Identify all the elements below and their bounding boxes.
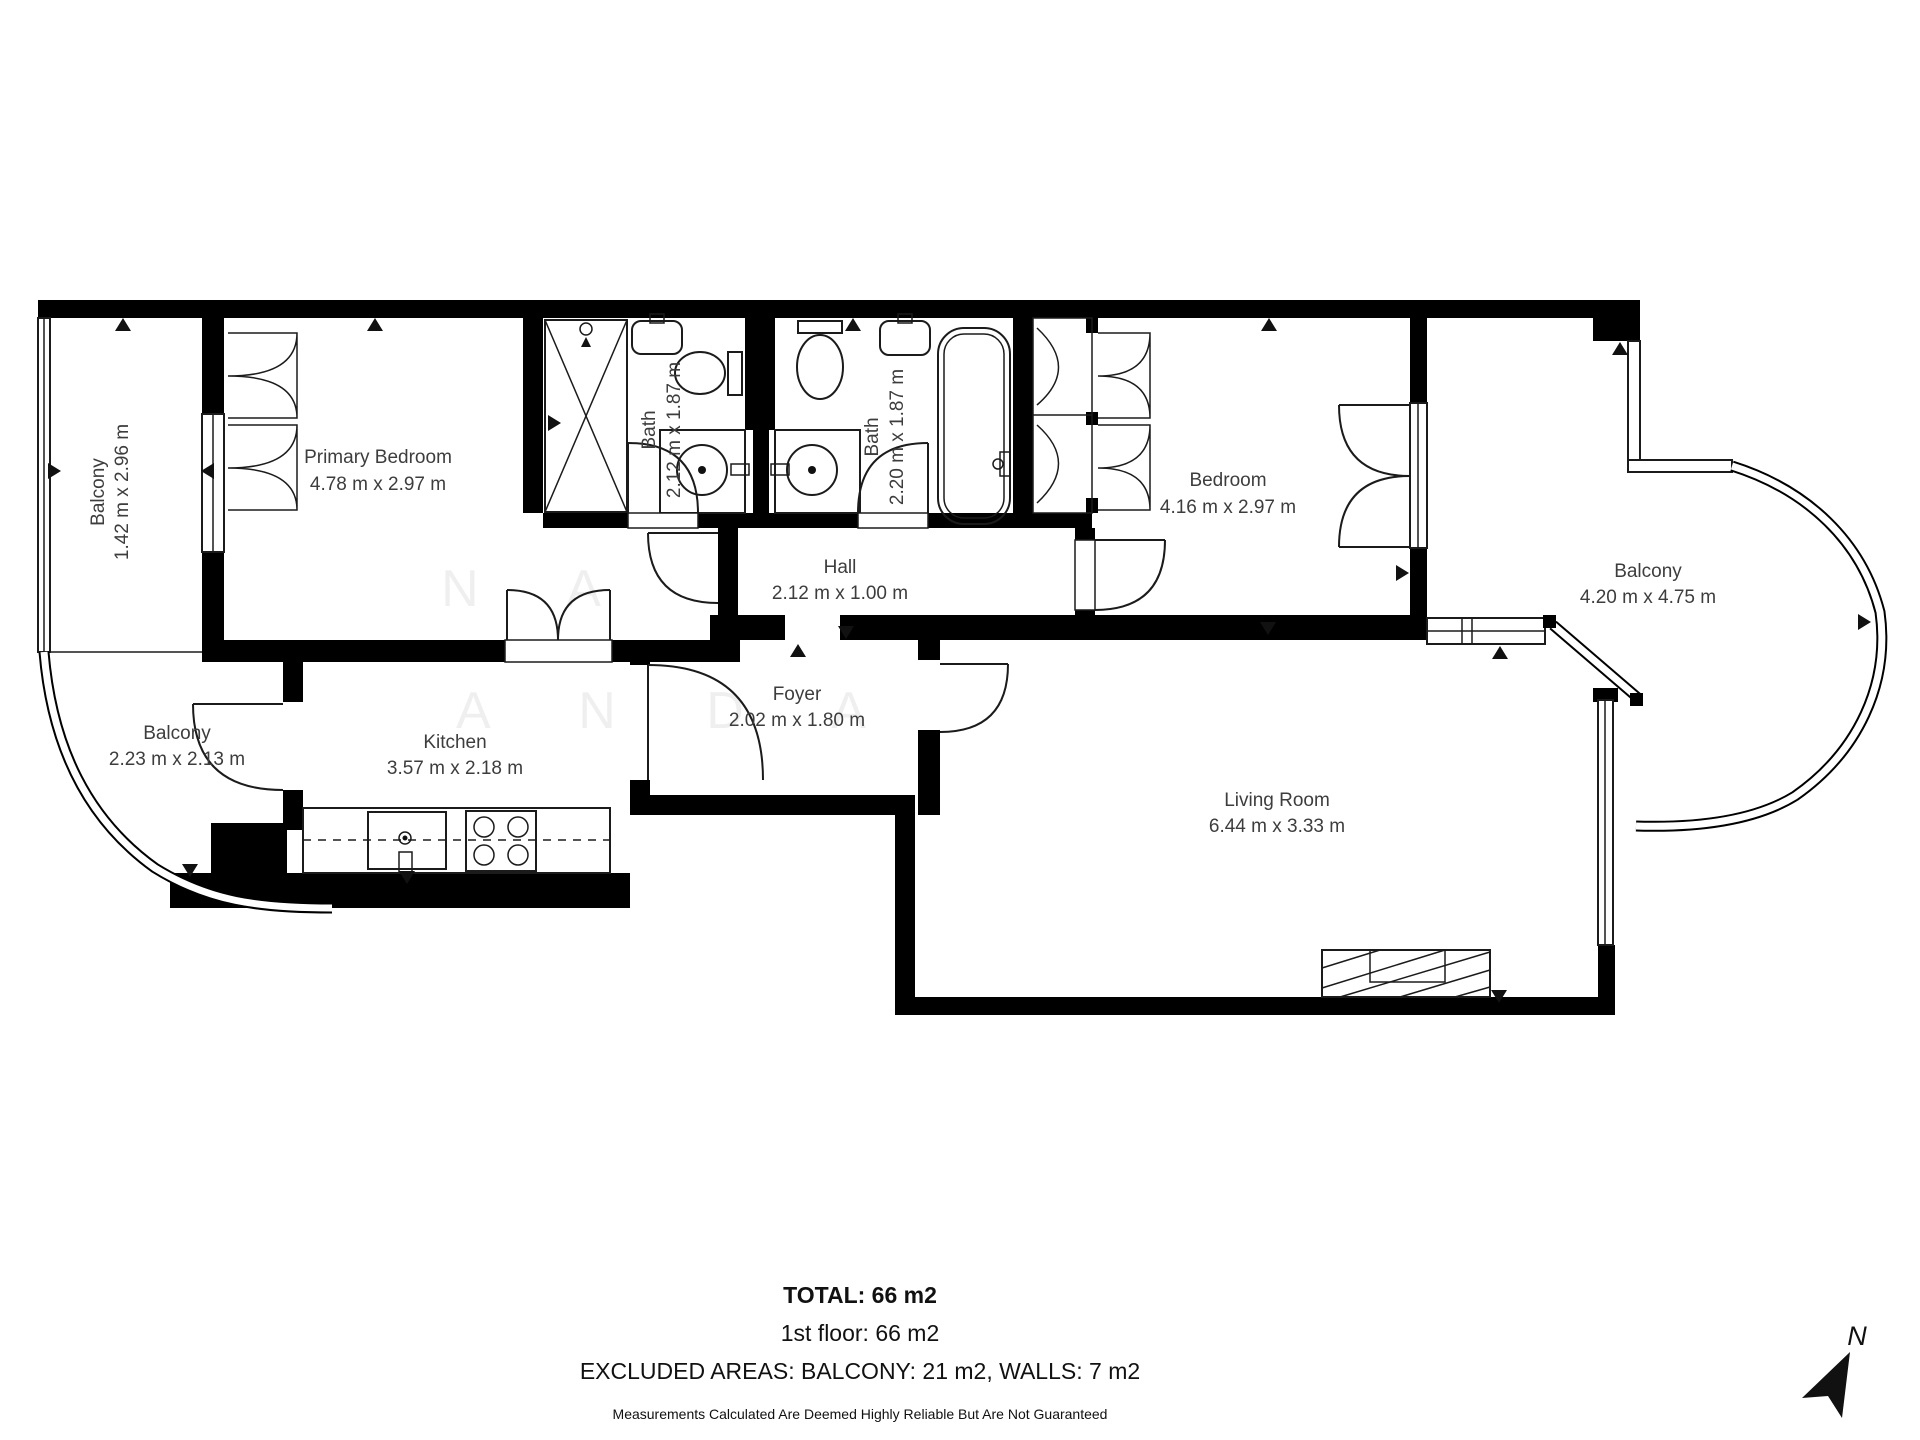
room-dims-balcony-lower: 2.23 m x 2.13 m (109, 749, 245, 770)
wardrobe-doors (228, 333, 297, 418)
toilet-tank (798, 321, 842, 333)
room-label-bath-2: Bath (862, 417, 883, 456)
north-arrow-icon (1802, 1352, 1850, 1418)
room-dims-foyer: 2.02 m x 1.80 m (729, 710, 865, 731)
room-dims-bath-2: 2.20 m x 1.87 m (887, 369, 908, 505)
door-arc (1095, 540, 1165, 610)
sink (880, 321, 930, 355)
floor-area: 1st floor: 66 m2 (0, 1314, 1720, 1352)
room-label-bedroom: Bedroom (1189, 470, 1266, 491)
room-dims-primary-bedroom: 4.78 m x 2.97 m (310, 474, 446, 495)
bathtub (938, 328, 1010, 524)
room-dims-hall: 2.12 m x 1.00 m (772, 583, 908, 604)
room-dims-living-room: 6.44 m x 3.33 m (1209, 816, 1345, 837)
summary-footer: TOTAL: 66 m2 1st floor: 66 m2 EXCLUDED A… (0, 1276, 1720, 1422)
door-arc (648, 533, 718, 603)
room-label-hall: Hall (824, 557, 857, 578)
sink (632, 321, 682, 354)
kitchen-fixtures (303, 808, 610, 873)
disclaimer: Measurements Calculated Are Deemed Highl… (0, 1406, 1720, 1422)
french-door-arcs (1339, 405, 1410, 547)
room-labels: Primary Bedroom 4.78 m x 2.97 m Balcony … (88, 362, 1716, 837)
room-label-living-room: Living Room (1224, 790, 1330, 811)
room-label-foyer: Foyer (773, 684, 822, 705)
floor-plan-drawing: N A A N D A (0, 0, 1920, 1440)
room-label-balcony-left: Balcony (88, 458, 109, 526)
north-label: N (1847, 1321, 1867, 1351)
room-dims-balcony-left: 1.42 m x 2.96 m (112, 424, 133, 560)
room-dims-bedroom: 4.16 m x 2.97 m (1160, 497, 1296, 518)
wardrobe-doors (228, 425, 297, 510)
room-dims-bath-1: 2.12 m x 1.87 m (664, 362, 685, 498)
tub-faucet-icon (1000, 452, 1010, 476)
excluded-areas: EXCLUDED AREAS: BALCONY: 21 m2, WALLS: 7… (0, 1352, 1720, 1390)
room-label-bath-1: Bath (639, 410, 660, 449)
toilet (797, 335, 843, 399)
burner-icon (508, 845, 528, 865)
closet (1033, 318, 1092, 513)
faucet-icon (731, 464, 749, 475)
room-label-kitchen: Kitchen (423, 732, 486, 753)
burner-icon (474, 817, 494, 837)
door-arc (628, 443, 698, 513)
hatched-unit (1322, 950, 1490, 997)
burner-icon (474, 845, 494, 865)
closet-doors (1098, 333, 1150, 418)
burner-icon (508, 817, 528, 837)
door-arc (940, 664, 1008, 732)
room-label-balcony-lower: Balcony (143, 723, 211, 744)
room-label-primary-bedroom: Primary Bedroom (304, 447, 452, 468)
shower-head-icon (580, 323, 592, 335)
room-label-balcony-right: Balcony (1614, 561, 1682, 582)
room-dims-balcony-right: 4.20 m x 4.75 m (1580, 587, 1716, 608)
toilet-tank (728, 352, 742, 395)
closet-doors (1098, 425, 1150, 510)
door-arc (193, 704, 283, 790)
total-area: TOTAL: 66 m2 (0, 1276, 1720, 1314)
compass: N (1802, 1321, 1867, 1418)
floor-plan-page: N A A N D A (0, 0, 1920, 1440)
room-dims-kitchen: 3.57 m x 2.18 m (387, 758, 523, 779)
